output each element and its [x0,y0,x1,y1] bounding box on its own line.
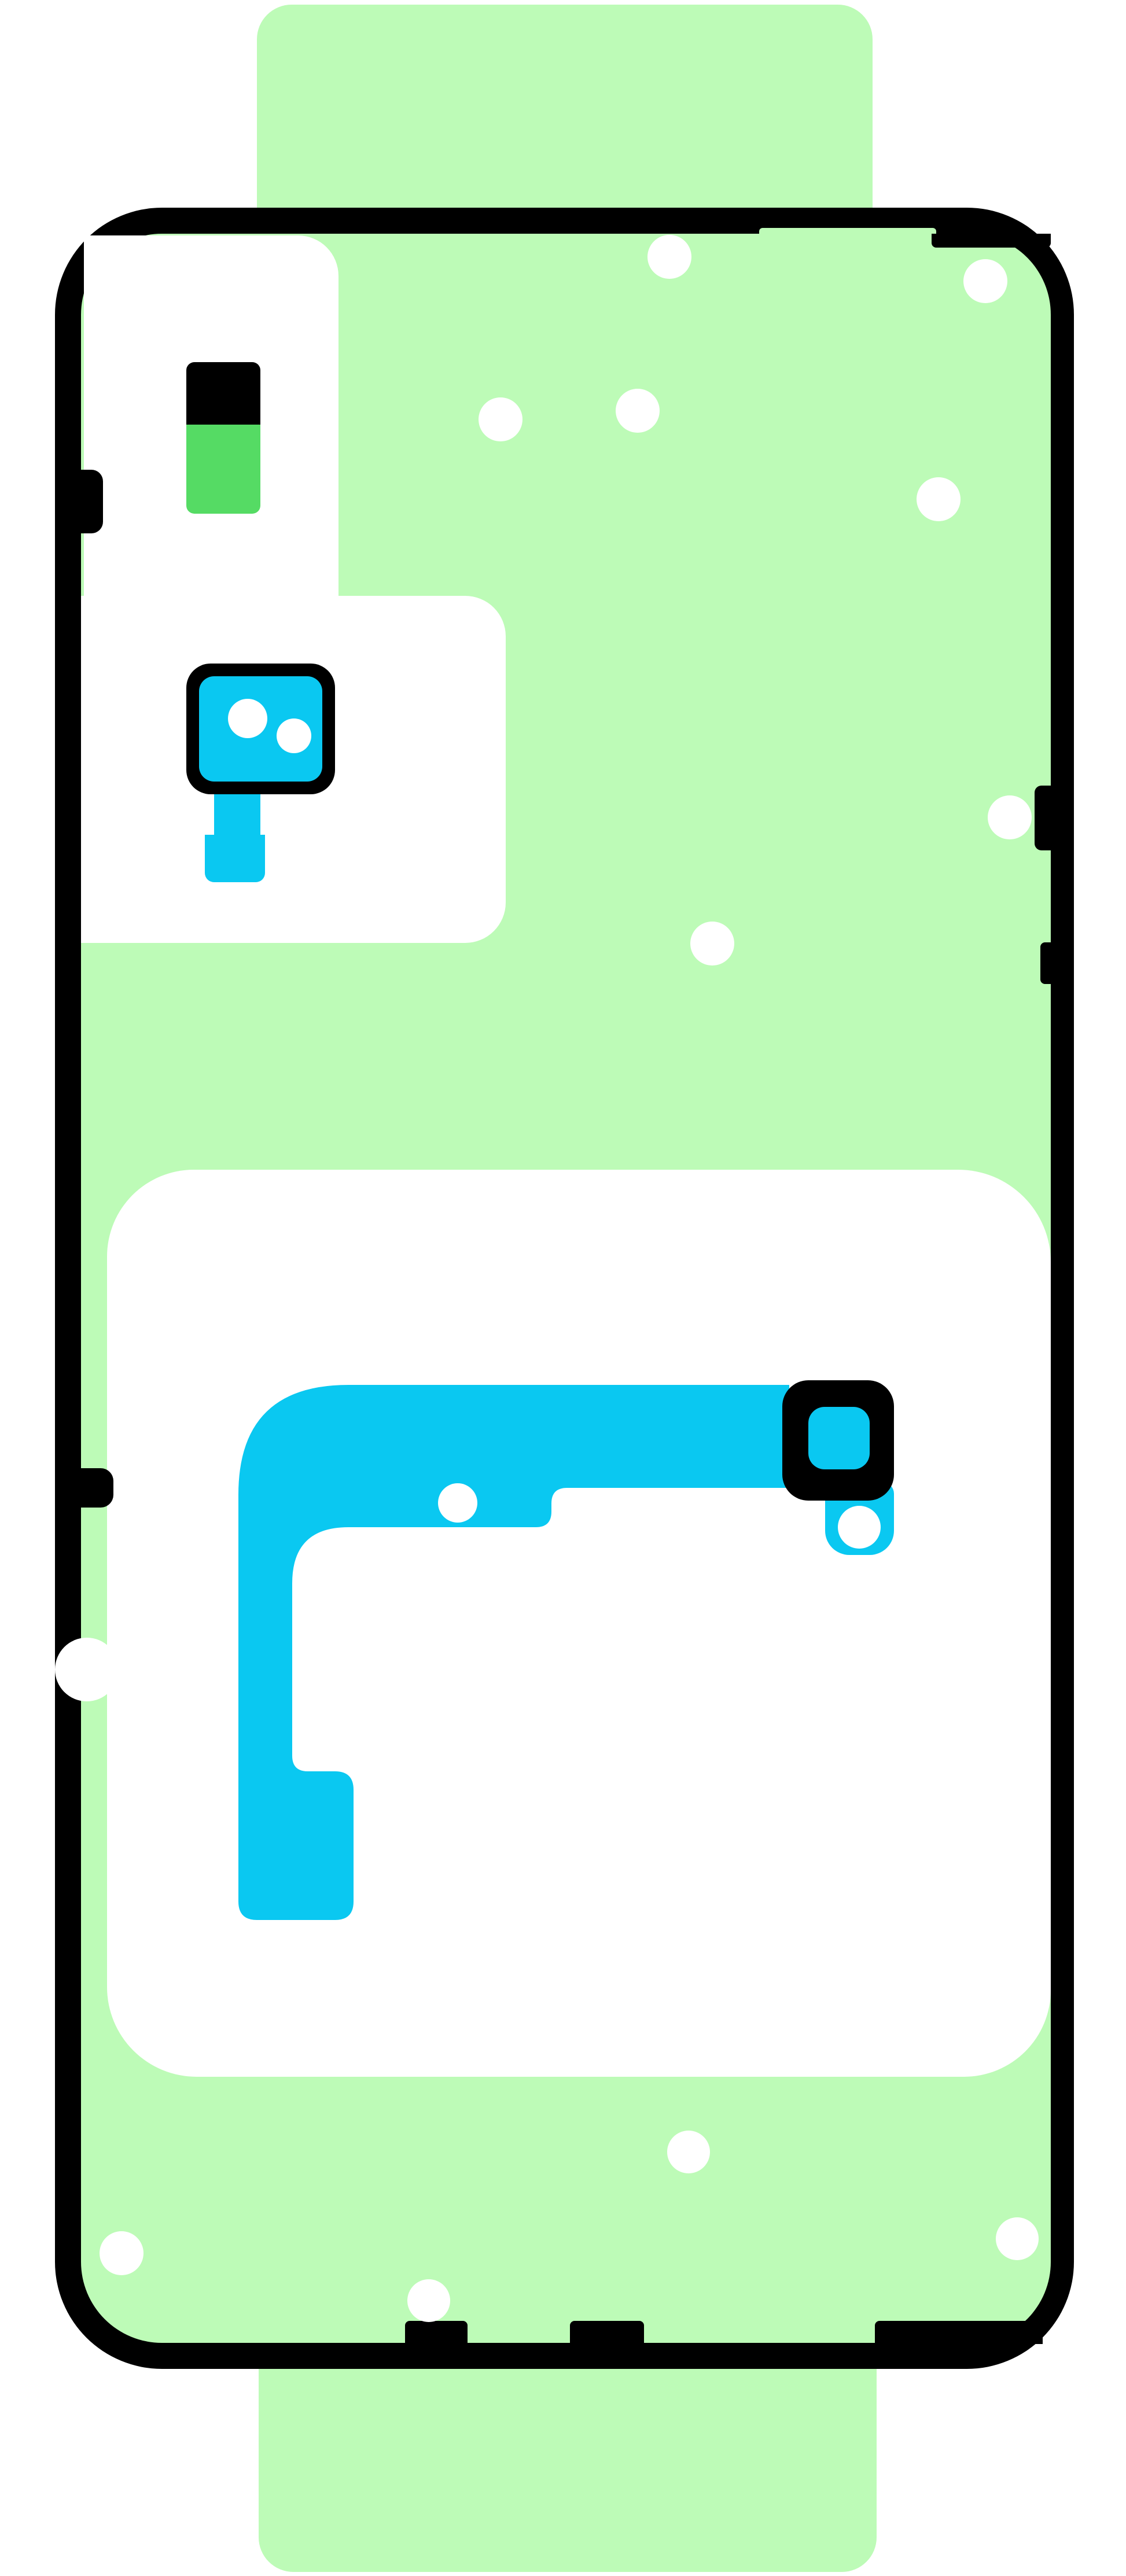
adhesive-sheet-diagram [0,0,1126,2576]
liner-hole-dot [988,795,1032,839]
liner-hole-dot [917,477,961,521]
flex-hole-dot [838,1506,881,1549]
liner-hole-dot [479,397,522,441]
liner-hole-dot [996,2217,1039,2260]
liner-hole-dot [100,2231,143,2275]
liner-hole-dot [407,2279,450,2322]
liner-hole-dot [963,259,1007,303]
liner-hole-dot [667,2131,710,2173]
registration-holes-layer [0,0,1126,2576]
liner-hole-dot [647,235,691,279]
edge-notch-dot [55,1638,119,1701]
camera-hole-dot [228,699,267,738]
liner-hole-dot [690,922,734,965]
flex-hole-dot [438,1483,477,1523]
liner-hole-dot [616,389,660,433]
camera-hole-dot [277,718,311,753]
